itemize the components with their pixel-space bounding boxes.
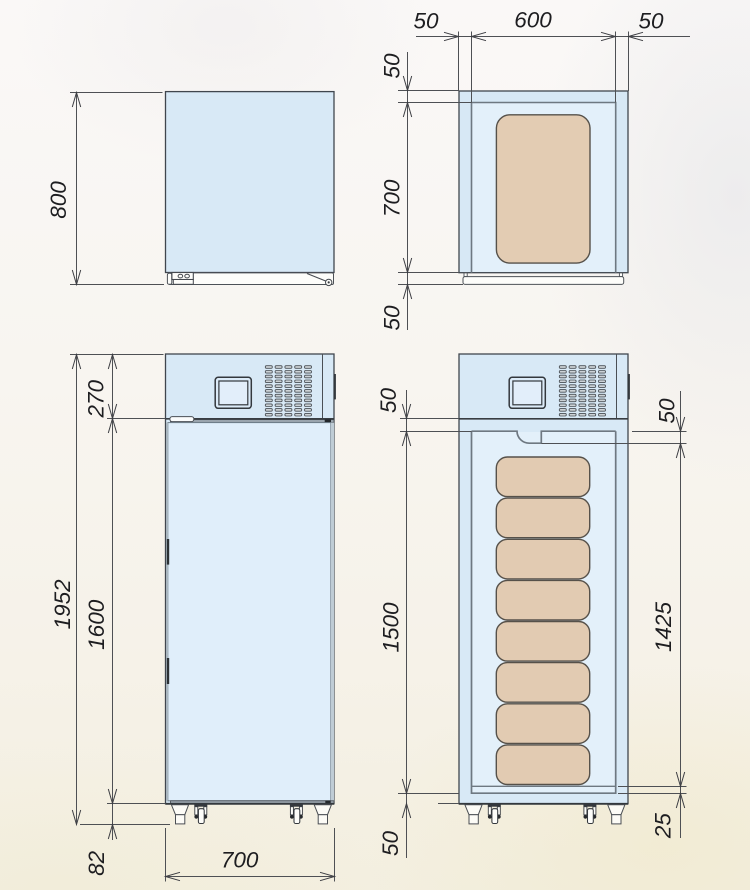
svg-text:50: 50 bbox=[638, 9, 664, 34]
svg-text:82: 82 bbox=[84, 850, 109, 876]
svg-text:270: 270 bbox=[83, 379, 108, 418]
svg-text:1952: 1952 bbox=[50, 579, 75, 630]
svg-text:50: 50 bbox=[378, 831, 403, 857]
svg-text:50: 50 bbox=[380, 305, 405, 331]
svg-text:1500: 1500 bbox=[379, 602, 404, 653]
svg-text:50: 50 bbox=[380, 53, 405, 79]
svg-text:1600: 1600 bbox=[84, 599, 109, 650]
svg-text:700: 700 bbox=[221, 848, 259, 873]
svg-text:1425: 1425 bbox=[651, 601, 676, 652]
svg-text:800: 800 bbox=[46, 181, 71, 219]
svg-text:50: 50 bbox=[376, 388, 401, 414]
svg-text:600: 600 bbox=[514, 7, 552, 32]
svg-text:25: 25 bbox=[651, 813, 676, 840]
svg-text:50: 50 bbox=[413, 9, 439, 34]
svg-text:700: 700 bbox=[380, 179, 405, 217]
svg-text:50: 50 bbox=[655, 398, 680, 424]
